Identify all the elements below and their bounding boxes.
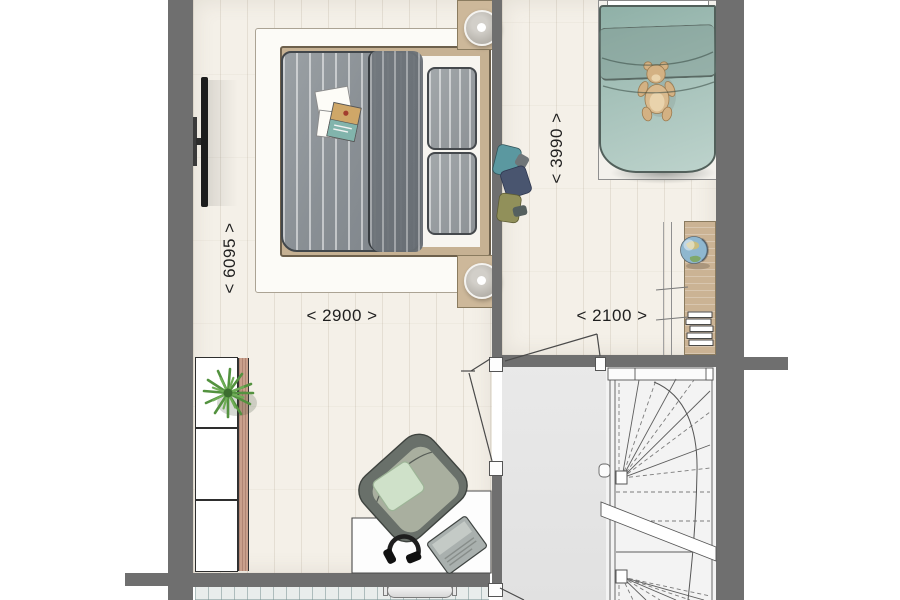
plant-icon [204, 369, 257, 417]
magazines-icon [315, 86, 361, 141]
floor-plan: < 6095 > < 2900 > < 3990 > < 2100 > [0, 0, 900, 600]
clothes-pile-icon [492, 144, 533, 224]
winder-stair-icon [599, 368, 716, 600]
dimension-label-3990: < 3990 > [547, 103, 567, 193]
dimension-label-6095: < 6095 > [220, 213, 240, 303]
dimension-label-2900: < 2900 > [297, 306, 387, 326]
desk-tick-marks [656, 287, 688, 320]
globe-icon [681, 237, 711, 270]
plan-detail-overlay [0, 0, 900, 600]
dimension-label-2100: < 2100 > [567, 306, 657, 326]
book-stack-icon [686, 312, 713, 346]
